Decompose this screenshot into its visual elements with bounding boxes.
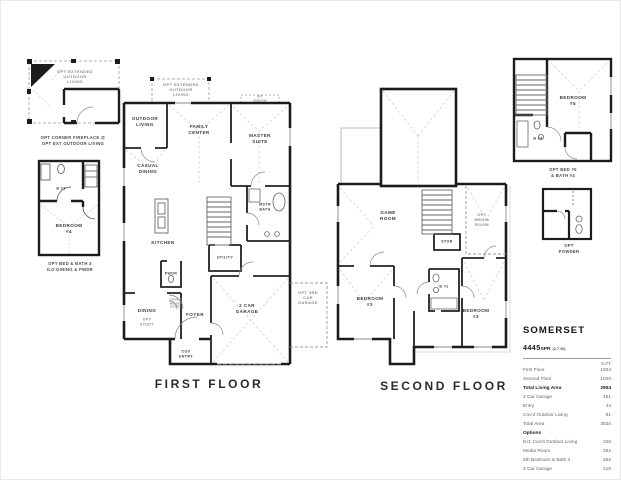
floorplan-sheet: OPT EXTENDED OUTDOOR LIVING OPT CORNER F… [0,0,621,480]
first-floor-plan: OPT EXTENDED OUTDOOR LIVING OUTDOOR LIVI… [119,73,334,403]
spec-row-5th-bedroom-bath4: 5th Bedroom & Bath 4262 [523,456,611,465]
first-floor-title: FIRST FLOOR [129,377,289,391]
room-label-bedroom5: BEDROOM #5 [560,95,587,107]
plan-name: SOMERSET [523,325,611,336]
second-floor-plan: GAME ROOM OPT MEDIA ROOM STOR B #2 BEDRO… [334,86,514,406]
spec-row-2-car-garage: 2 Car Garage451 [523,393,611,402]
inset-opt-bed4: B #3 BEDROOM #4 OPT BED & BATH 3 ILO DIN… [35,159,105,277]
room-label-bedroom4: BEDROOM #4 [56,223,83,235]
spec-row-media-room: Media Room282 [523,447,611,456]
inset-caption-bed4: OPT BED & BATH 3 ILO DINING & PWDR [35,261,105,272]
room-label-bedroom2: BEDROOM #2 [357,296,384,308]
spec-row-ext-covd-outdoor-living: Ext. Cov'd Outdoor Living228 [523,438,611,447]
spec-row-first-floor: First Floor1934 [523,366,611,375]
room-label-opt-extended: OPT EXTENDED OUTDOOR LIVING [163,82,199,98]
room-label-kitchen: KITCHEN [151,240,174,246]
room-label-casual-dining: CASUAL DINING [137,163,159,175]
opt-bed5-plan-drawing [507,57,619,163]
opt-powder-plan-drawing [539,187,599,241]
room-label-bath3: B #3 [56,187,65,192]
plan-version: (2.7.20) [552,347,565,351]
room-label-stairs-note: DOUBLE WINDER STAIRS [169,299,182,310]
second-floor-title: SECOND FLOOR [364,379,524,393]
spec-unit-header: S.FT [523,358,611,366]
inset-caption-fireplace: OPT CORNER FIREPLACE @ OPT EXT OUTDOOR L… [21,135,125,146]
spec-row-covd-outdoor-living: Cov'd Outdoor Living81 [523,411,611,420]
room-label-opt-3rd-garage: OPT 3RD CAR GARAGE [298,290,318,306]
room-label-bedroom3: BEDROOM #3 [463,308,490,320]
room-label-family-center: FAMILY CENTER [188,124,209,136]
room-label-2car-garage: 2 CAR GARAGE [236,303,259,315]
room-label-stor: STOR [441,240,453,245]
spec-row-3-car-garage: 3 Car Garage216 [523,465,611,474]
room-label-pwdr: PWDR [165,272,178,277]
inset-caption-bed5: OPT BED #5 & BATH #4 [507,167,619,178]
room-label-opt-window: OPT WINDOW [253,95,266,102]
inset-caption-powder: OPT POWDER [539,243,599,254]
room-label-cov-entry: COV ENTRY [179,349,193,358]
spec-options-header: Options [523,429,611,438]
spec-row-total-living-area: Total Living Area2954 [523,384,611,393]
room-label-opt-media-room: OPT MEDIA ROOM [475,212,490,228]
room-label-foyer: FOYER [186,312,204,318]
plan-model: 4445SPR(2.7.20) [523,337,611,355]
room-label-mstr-bath: MSTR BATH [259,202,271,211]
room-label-dining: DINING [138,308,156,314]
room-label-master-suite: MASTER SUITE [249,133,271,145]
inset-opt-fireplace: OPT EXTENDED OUTDOOR LIVING OPT CORNER F… [21,57,125,153]
room-label-opt-extended-outdoor-living-inset: OPT EXTENDED OUTDOOR LIVING [57,69,93,85]
opt-fireplace-plan-drawing [21,57,125,131]
second-floor-plan-drawing [334,86,514,371]
spec-table: SOMERSET 4445SPR(2.7.20) S.FT First Floo… [523,325,611,474]
plan-model-number: 4445 [523,343,541,352]
spec-row-second-floor: Second Floor1020 [523,375,611,384]
room-label-utility: UTILITY [217,256,233,261]
spec-row-entry: Entry44 [523,402,611,411]
room-label-game-room: GAME ROOM [380,210,396,222]
room-label-bath4: B #4 [533,137,542,142]
room-label-opt-study: OPT STUDY [140,317,154,326]
inset-opt-powder: OPT POWDER [539,187,599,257]
opt-bed4-plan-drawing [35,159,105,257]
plan-model-suffix: SPR [541,347,551,352]
room-label-bath2: B #2 [439,285,448,290]
spec-row-total-area: Total Area3530 [523,420,611,429]
room-label-outdoor-living: OUTDOOR LIVING [132,116,158,128]
inset-opt-bed5: BEDROOM #5 B #4 OPT BED #5 & BATH #4 [507,57,619,183]
